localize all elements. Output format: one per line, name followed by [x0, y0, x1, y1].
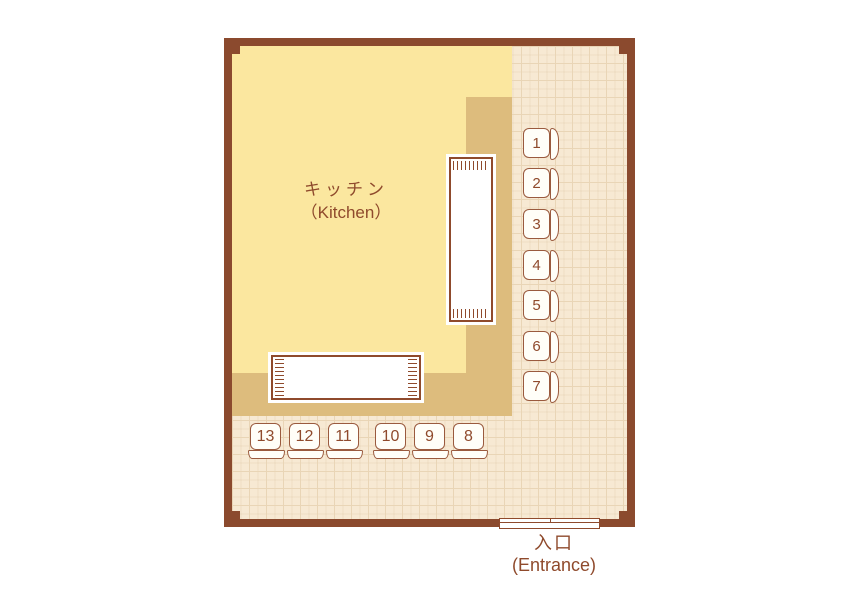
entrance-label-en: (Entrance) [493, 555, 615, 577]
kitchen-label: キッチン （Kitchen） [256, 179, 436, 225]
seat-skirt [373, 450, 410, 459]
table-hatch-top [453, 161, 489, 170]
seat-skirt [550, 290, 559, 322]
entrance-label-jp: 入口 [493, 533, 615, 555]
seat-number: 6 [532, 338, 540, 355]
counter-table-vertical [449, 157, 493, 322]
seat-number: 11 [335, 428, 352, 446]
seat-number: 8 [464, 428, 473, 446]
seat-number: 10 [382, 428, 400, 446]
room-wall-frame: キッチン （Kitchen） 1234567 1312111098 [224, 38, 635, 527]
seat-4: 4 [523, 250, 550, 280]
entrance-door [499, 518, 600, 529]
seat-skirt [326, 450, 363, 459]
seat-skirt [550, 209, 559, 241]
seat-12: 12 [289, 423, 320, 450]
seat-number: 7 [532, 378, 540, 395]
seat-number: 3 [532, 216, 540, 233]
seat-number: 2 [532, 175, 540, 192]
seat-9: 9 [414, 423, 445, 450]
seat-skirt [451, 450, 488, 459]
wall-corner-post [619, 46, 627, 54]
entrance-label: 入口 (Entrance) [493, 533, 615, 577]
seat-8: 8 [453, 423, 484, 450]
seat-7: 7 [523, 371, 550, 401]
seat-11: 11 [328, 423, 359, 450]
seat-6: 6 [523, 331, 550, 361]
seat-1: 1 [523, 128, 550, 158]
seat-skirt [550, 331, 559, 363]
seat-skirt [550, 168, 559, 200]
seat-skirt [412, 450, 449, 459]
seat-number: 12 [296, 428, 314, 446]
seat-number: 13 [257, 428, 275, 446]
counter-table-horizontal [271, 355, 421, 400]
wall-corner-post [232, 46, 240, 54]
table-hatch-bottom [453, 309, 489, 318]
table-hatch-left [275, 359, 284, 396]
seat-13: 13 [250, 423, 281, 450]
wall-corner-post [619, 511, 627, 519]
seat-5: 5 [523, 290, 550, 320]
seat-skirt [248, 450, 285, 459]
seat-skirt [287, 450, 324, 459]
restaurant-floor-plan: キッチン （Kitchen） 1234567 1312111098 入口 (En… [0, 0, 860, 600]
seat-10: 10 [375, 423, 406, 450]
seat-skirt [550, 128, 559, 160]
wall-corner-post [232, 511, 240, 519]
kitchen-label-jp: キッチン [256, 179, 436, 202]
seat-number: 5 [532, 297, 540, 314]
seat-2: 2 [523, 168, 550, 198]
seat-skirt [550, 250, 559, 282]
table-hatch-right [408, 359, 417, 396]
seat-number: 4 [532, 257, 540, 274]
seat-number: 1 [532, 135, 540, 152]
seat-number: 9 [425, 428, 434, 446]
seat-skirt [550, 371, 559, 403]
kitchen-label-en: （Kitchen） [256, 202, 436, 225]
seat-3: 3 [523, 209, 550, 239]
